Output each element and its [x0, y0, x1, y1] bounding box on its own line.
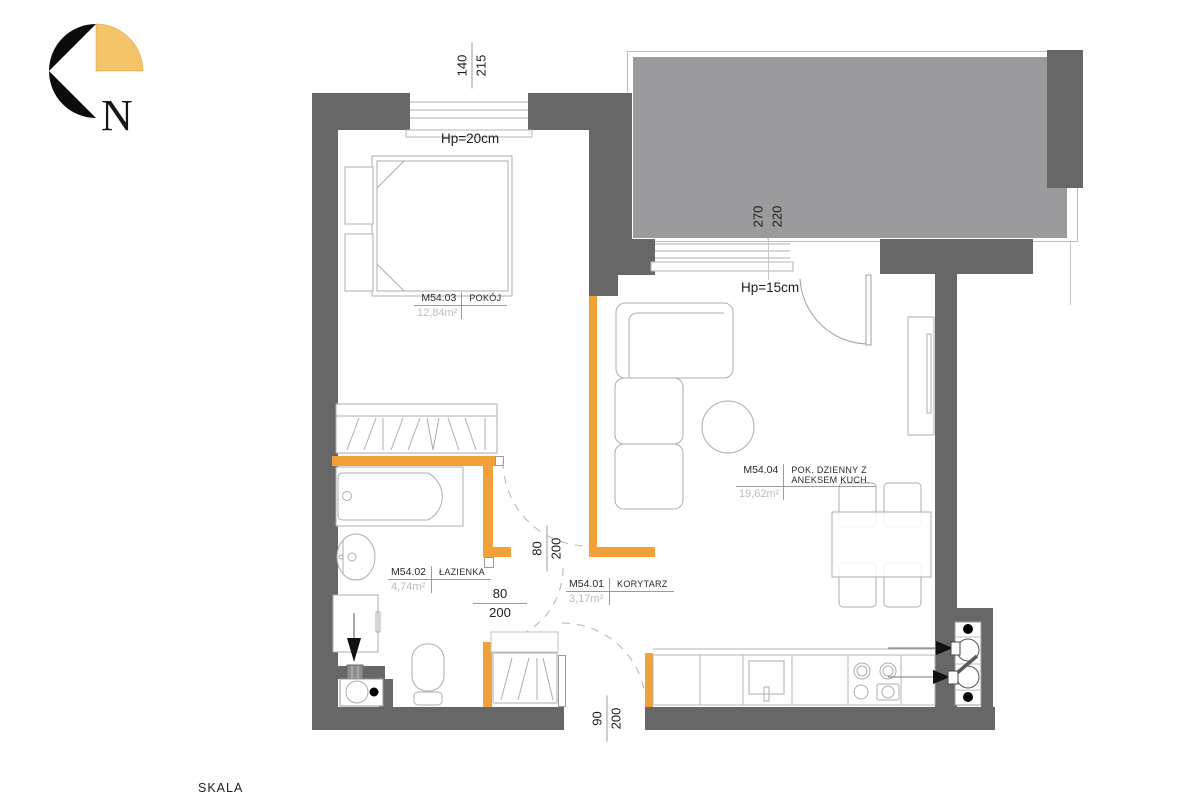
right-arrow-icon [933, 670, 950, 684]
label-divider [609, 592, 674, 605]
dim-bedroom-window: 140 215 [454, 43, 491, 89]
nightstand [345, 234, 373, 291]
dim-value: 220 [769, 194, 787, 240]
tv-cabinet [908, 317, 934, 435]
room-area: 19,62m² [736, 487, 783, 500]
label-divider [783, 487, 875, 500]
corner-sofa [615, 303, 733, 509]
sill-label-bedroom: Hp=20cm [441, 131, 499, 146]
room-name: POKÓJ [461, 292, 507, 306]
room-label-pokoj: M54.03 POKÓJ 12,84m² [414, 292, 507, 319]
room-code: M54.04 [736, 464, 783, 487]
label-divider [431, 580, 491, 593]
sill-label-living: Hp=15cm [741, 280, 799, 295]
dim-value: 200 [548, 526, 566, 572]
dim-value: 90 [589, 696, 608, 742]
stove [854, 663, 899, 700]
washbasin [337, 534, 375, 580]
room-name-line1: POK. DZIENNY Z [791, 465, 867, 475]
dim-extension-line [768, 238, 769, 280]
dim-value: 270 [750, 194, 769, 240]
room-name: KORYTARZ [609, 578, 674, 592]
room-area: 4,74m² [388, 580, 431, 593]
dim-value: 80 [529, 526, 548, 572]
coffee-table [702, 401, 754, 453]
bed [372, 156, 512, 296]
compass-north-letter: N [101, 91, 133, 140]
room-label-dzienny: M54.04 POK. DZIENNY Z ANEKSEM KUCH. 19,6… [736, 464, 876, 500]
dim-value: 200 [608, 696, 626, 742]
linework-layer: N [0, 0, 1184, 800]
dining-set [832, 483, 931, 607]
washing-machine [340, 679, 383, 706]
utility-connection-arrows [888, 641, 960, 684]
dim-value: 200 [473, 604, 527, 622]
room-code: M54.03 [414, 292, 461, 306]
balcony-door-leaf [866, 275, 871, 345]
room-code: M54.02 [388, 566, 431, 580]
washing-machine-knob [370, 688, 379, 697]
dim-bedroom-door: 80 200 [529, 526, 566, 572]
room-code: M54.01 [566, 578, 609, 592]
room-name: ŁAZIENKA [431, 566, 491, 580]
nightstand [345, 167, 373, 224]
compass: N [49, 24, 143, 140]
dim-value: 140 [454, 43, 473, 89]
dim-living-window: 270 220 [750, 194, 787, 240]
dim-entrance-door: 90 200 [589, 696, 626, 742]
label-divider [461, 306, 507, 319]
living-window [651, 244, 793, 271]
dining-table [832, 512, 931, 577]
kitchen-sink [749, 661, 784, 701]
room-area: 12,84m² [414, 306, 461, 319]
wardrobe-bedroom [336, 404, 497, 453]
balcony-door-swing [800, 279, 869, 344]
room-label-lazienka: M54.02 ŁAZIENKA 4,74m² [388, 566, 491, 593]
compass-needle-west [49, 24, 96, 118]
room-label-korytarz: M54.01 KORYTARZ 3,17m² [566, 578, 674, 605]
toilet [412, 644, 444, 705]
compass-quarter-ne [96, 24, 143, 71]
entrance-door-swing [562, 623, 646, 707]
bathtub [336, 467, 463, 526]
wardrobe-corridor [491, 632, 558, 703]
right-arrow-icon [936, 641, 953, 655]
scale-label: SKALA [198, 781, 243, 795]
room-name-line2: ANEKSEM KUCH. [791, 475, 869, 485]
vent-point [963, 692, 973, 702]
room-area: 3,17m² [566, 592, 609, 605]
room-name: POK. DZIENNY Z ANEKSEM KUCH. [783, 464, 875, 487]
living-window-sill [651, 262, 793, 271]
vent-point [963, 624, 973, 634]
floor-plan: N Hp=20cm Hp=15cm 140 215 270 220 80 200… [0, 0, 1184, 800]
dim-value: 215 [473, 43, 491, 89]
balcony-door [800, 275, 871, 345]
installation-shaft [955, 622, 981, 705]
